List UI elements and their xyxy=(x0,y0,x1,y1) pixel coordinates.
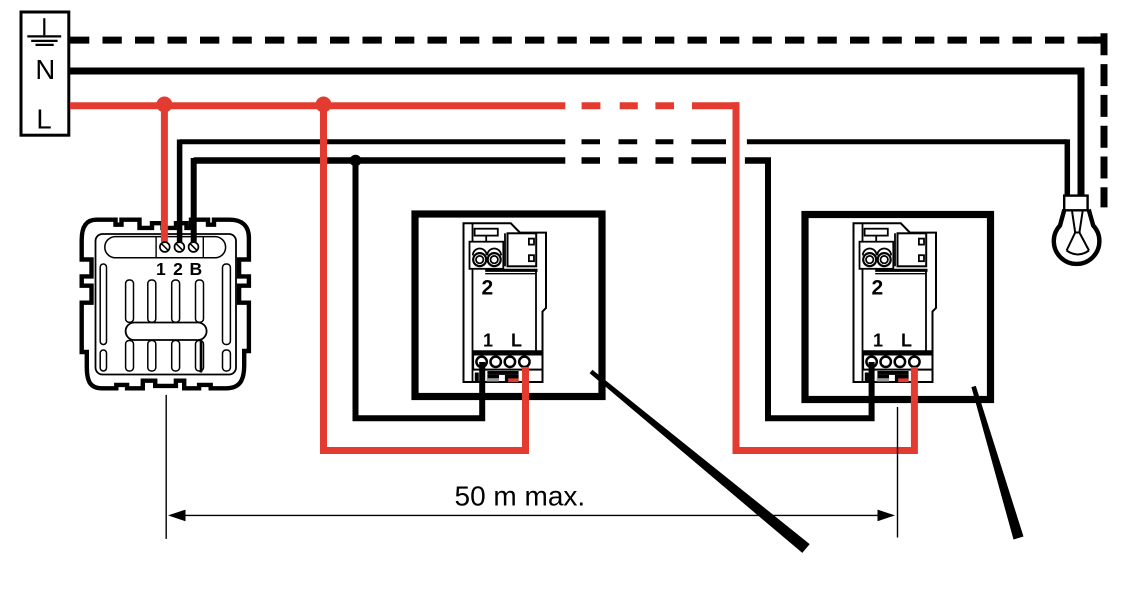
svg-text:50 m max.: 50 m max. xyxy=(455,480,586,511)
svg-text:L: L xyxy=(36,103,51,134)
svg-text:B: B xyxy=(189,259,202,279)
svg-text:2: 2 xyxy=(173,259,183,279)
svg-text:1: 1 xyxy=(156,259,166,279)
svg-text:N: N xyxy=(35,54,55,85)
